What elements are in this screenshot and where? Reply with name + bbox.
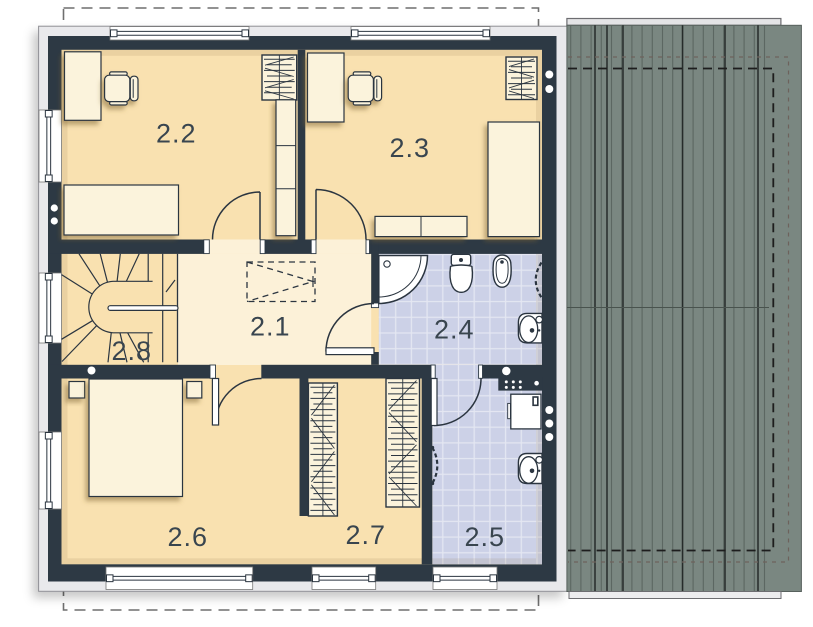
svg-text:2.8: 2.8: [112, 336, 153, 366]
svg-text:2.2: 2.2: [156, 119, 197, 149]
svg-text:2.6: 2.6: [168, 522, 209, 552]
svg-text:2.1: 2.1: [250, 312, 291, 342]
svg-text:2.3: 2.3: [390, 133, 431, 163]
svg-text:2.5: 2.5: [465, 522, 506, 552]
svg-text:2.7: 2.7: [346, 520, 387, 550]
svg-text:2.4: 2.4: [434, 315, 475, 345]
